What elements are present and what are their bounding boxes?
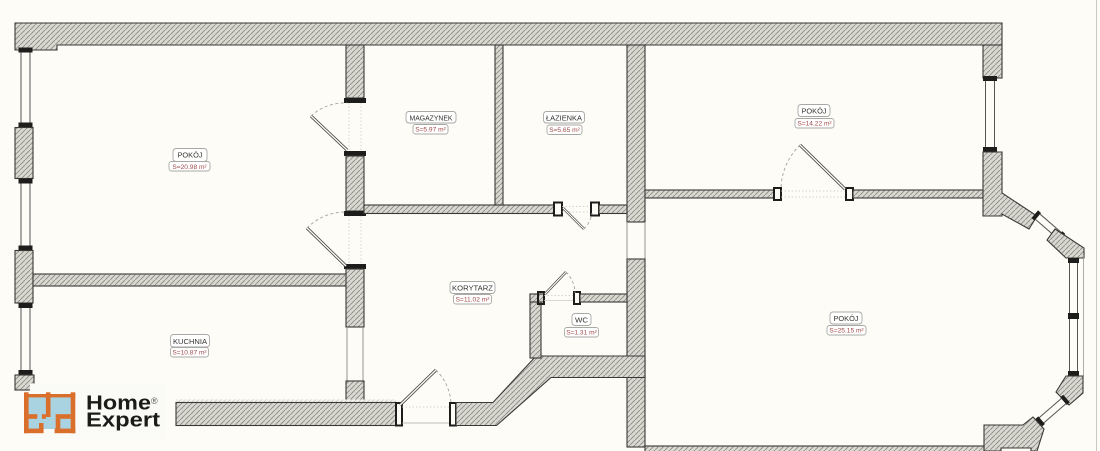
svg-text:S=20.98 m²: S=20.98 m²: [172, 164, 207, 171]
svg-text:KORYTARZ: KORYTARZ: [452, 284, 494, 293]
svg-text:POKÓJ: POKÓJ: [178, 151, 203, 160]
svg-text:S=10.87 m²: S=10.87 m²: [172, 350, 207, 357]
svg-text:S=25.15 m²: S=25.15 m²: [829, 328, 864, 335]
svg-text:WC: WC: [575, 316, 588, 325]
svg-text:ŁAZIENKA: ŁAZIENKA: [546, 114, 582, 123]
svg-text:S=5.97 m²: S=5.97 m²: [415, 127, 446, 134]
svg-text:S=14.22 m²: S=14.22 m²: [797, 121, 832, 128]
svg-text:S=5.65 m²: S=5.65 m²: [549, 127, 580, 134]
svg-text:S=11.02 m²: S=11.02 m²: [456, 297, 491, 304]
svg-text:Expert: Expert: [86, 410, 160, 432]
svg-text:S=1.31 m²: S=1.31 m²: [566, 330, 597, 337]
svg-text:KUCHNIA: KUCHNIA: [173, 337, 207, 346]
svg-text:POKÓJ: POKÓJ: [834, 314, 859, 323]
svg-text:POKÓJ: POKÓJ: [802, 107, 827, 116]
svg-text:MAGAZYNEK: MAGAZYNEK: [410, 114, 453, 123]
svg-text:®: ®: [151, 396, 158, 406]
